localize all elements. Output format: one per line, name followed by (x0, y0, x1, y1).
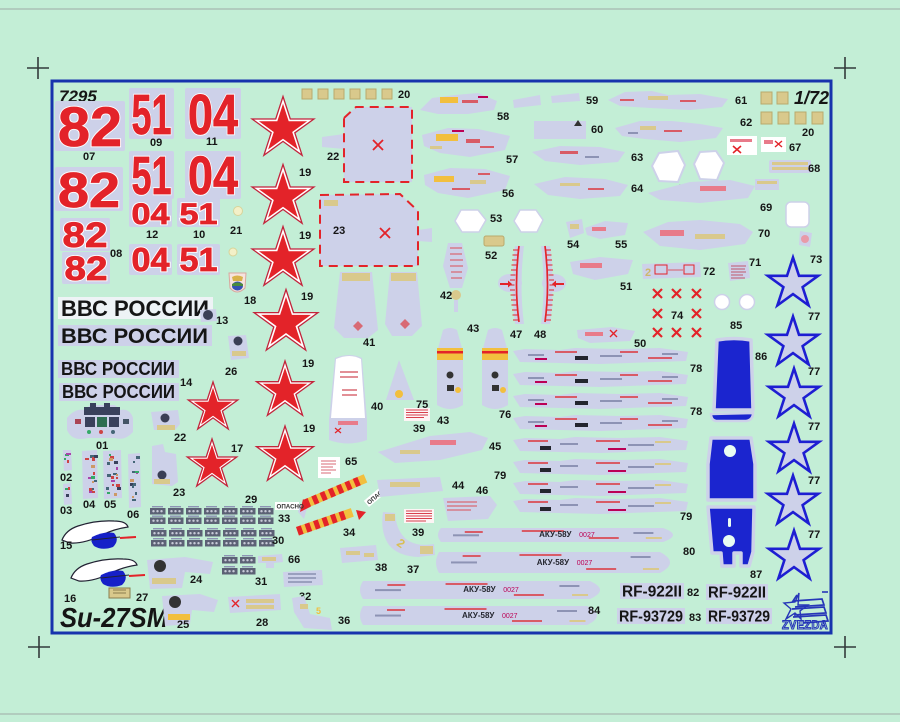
svg-text:10: 10 (193, 229, 205, 241)
svg-text:85: 85 (730, 320, 742, 332)
svg-text:11: 11 (206, 136, 218, 148)
svg-text:54: 54 (567, 239, 580, 251)
svg-text:36: 36 (338, 615, 350, 627)
svg-text:51: 51 (132, 146, 172, 206)
svg-text:87: 87 (750, 569, 762, 581)
svg-text:0027: 0027 (577, 560, 593, 567)
svg-text:43: 43 (467, 323, 479, 335)
svg-text:62: 62 (740, 117, 752, 129)
svg-text:08: 08 (110, 248, 122, 260)
svg-text:04: 04 (188, 146, 238, 206)
svg-text:0027: 0027 (579, 532, 595, 539)
svg-text:55: 55 (615, 239, 627, 251)
svg-text:19: 19 (299, 230, 311, 242)
svg-text:39: 39 (412, 527, 424, 539)
svg-text:0027: 0027 (503, 587, 519, 594)
svg-text:70: 70 (758, 228, 770, 240)
svg-text:30: 30 (272, 535, 284, 547)
svg-text:06: 06 (127, 509, 139, 521)
svg-text:82: 82 (58, 95, 122, 158)
svg-text:63: 63 (631, 152, 643, 164)
svg-text:05: 05 (104, 499, 116, 511)
svg-text:39: 39 (413, 423, 425, 435)
svg-text:53: 53 (490, 213, 502, 225)
svg-text:21: 21 (230, 225, 242, 237)
svg-text:48: 48 (534, 329, 546, 341)
svg-text:22: 22 (174, 432, 186, 444)
svg-text:76: 76 (499, 409, 511, 421)
svg-text:74: 74 (671, 310, 684, 322)
svg-text:71: 71 (749, 257, 761, 269)
svg-text:26: 26 (225, 366, 237, 378)
svg-text:66: 66 (288, 554, 300, 566)
svg-text:67: 67 (789, 142, 801, 154)
svg-text:04: 04 (132, 241, 171, 278)
svg-text:0027: 0027 (502, 613, 518, 620)
svg-text:09: 09 (150, 137, 162, 149)
svg-text:45: 45 (489, 441, 501, 453)
svg-text:23: 23 (173, 487, 185, 499)
svg-text:68: 68 (808, 163, 820, 175)
svg-text:60: 60 (591, 124, 603, 136)
svg-text:72: 72 (703, 266, 715, 278)
svg-text:44: 44 (452, 480, 465, 492)
svg-text:79: 79 (494, 470, 506, 482)
svg-text:43: 43 (437, 415, 449, 427)
svg-text:29: 29 (245, 494, 257, 506)
svg-text:77: 77 (808, 475, 820, 487)
svg-text:24: 24 (190, 574, 203, 586)
svg-text:ВВС РОССИИ: ВВС РОССИИ (61, 359, 175, 379)
svg-text:50: 50 (634, 338, 646, 350)
svg-text:RF-93729: RF-93729 (708, 609, 770, 626)
svg-text:38: 38 (375, 562, 387, 574)
svg-text:57: 57 (506, 154, 518, 166)
svg-text:69: 69 (760, 202, 772, 214)
svg-text:АКУ-58У: АКУ-58У (537, 558, 570, 567)
svg-text:03: 03 (60, 505, 72, 517)
svg-text:77: 77 (808, 421, 820, 433)
svg-text:51: 51 (620, 281, 632, 293)
svg-text:RF-922II: RF-922II (708, 585, 766, 602)
svg-text:34: 34 (343, 527, 356, 539)
svg-text:28: 28 (256, 617, 268, 629)
svg-text:1/72: 1/72 (794, 88, 829, 108)
svg-text:АКУ-58У: АКУ-58У (463, 585, 496, 594)
svg-text:23: 23 (333, 225, 345, 237)
svg-text:58: 58 (497, 111, 509, 123)
svg-text:18: 18 (244, 295, 256, 307)
svg-text:ВВС РОССИИ: ВВС РОССИИ (61, 325, 208, 348)
svg-text:78: 78 (690, 406, 702, 418)
svg-text:77: 77 (808, 366, 820, 378)
svg-text:2: 2 (645, 267, 651, 279)
svg-text:04: 04 (83, 499, 96, 511)
svg-text:47: 47 (510, 329, 522, 341)
svg-text:Su-27SM: Su-27SM (60, 602, 169, 633)
svg-text:ZVEZDA: ZVEZDA (782, 620, 828, 632)
svg-text:78: 78 (690, 363, 702, 375)
svg-text:19: 19 (301, 291, 313, 303)
svg-text:5: 5 (316, 606, 321, 616)
svg-text:RF-93729: RF-93729 (619, 609, 683, 626)
svg-text:61: 61 (735, 95, 747, 107)
svg-text:04: 04 (132, 198, 170, 231)
svg-text:82: 82 (58, 164, 120, 218)
svg-text:02: 02 (60, 472, 72, 484)
svg-text:65: 65 (345, 456, 357, 468)
svg-text:56: 56 (502, 188, 514, 200)
svg-text:ВВС РОССИИ: ВВС РОССИИ (61, 296, 209, 321)
svg-text:27: 27 (136, 592, 148, 604)
svg-text:46: 46 (476, 485, 488, 497)
svg-text:77: 77 (808, 529, 820, 541)
svg-text:15: 15 (60, 540, 72, 552)
svg-text:16: 16 (64, 593, 76, 605)
svg-text:51: 51 (180, 241, 218, 278)
svg-text:82: 82 (687, 587, 699, 599)
svg-text:86: 86 (755, 351, 767, 363)
svg-text:77: 77 (808, 311, 820, 323)
svg-text:31: 31 (255, 576, 267, 588)
svg-text:82: 82 (65, 250, 108, 288)
svg-text:59: 59 (586, 95, 598, 107)
svg-text:25: 25 (177, 619, 189, 631)
svg-text:51: 51 (180, 198, 218, 231)
svg-text:19: 19 (303, 423, 315, 435)
svg-text:22: 22 (327, 151, 339, 163)
svg-text:80: 80 (683, 546, 695, 558)
svg-text:19: 19 (299, 167, 311, 179)
svg-text:33: 33 (278, 513, 290, 525)
svg-text:73: 73 (810, 254, 822, 266)
svg-text:07: 07 (83, 151, 95, 163)
svg-text:83: 83 (689, 612, 701, 624)
svg-text:01: 01 (96, 440, 108, 452)
svg-text:ВВС РОССИИ: ВВС РОССИИ (62, 382, 175, 402)
svg-text:12: 12 (146, 229, 158, 241)
svg-text:17: 17 (231, 443, 243, 455)
svg-text:20: 20 (802, 127, 814, 139)
svg-text:52: 52 (485, 250, 497, 262)
svg-text:АКУ-58У: АКУ-58У (539, 530, 572, 539)
svg-text:79: 79 (680, 511, 692, 523)
svg-text:RF-922II: RF-922II (622, 584, 682, 601)
svg-text:ОПАСНО: ОПАСНО (277, 504, 305, 511)
svg-text:41: 41 (363, 337, 375, 349)
svg-text:37: 37 (407, 564, 419, 576)
svg-text:13: 13 (216, 315, 228, 327)
svg-text:20: 20 (398, 89, 410, 101)
svg-text:АКУ-58У: АКУ-58У (462, 611, 495, 620)
svg-text:42: 42 (440, 290, 452, 302)
svg-text:40: 40 (371, 401, 383, 413)
svg-text:64: 64 (631, 183, 644, 195)
svg-text:14: 14 (180, 377, 193, 389)
svg-text:84: 84 (588, 605, 601, 617)
svg-text:19: 19 (302, 358, 314, 370)
